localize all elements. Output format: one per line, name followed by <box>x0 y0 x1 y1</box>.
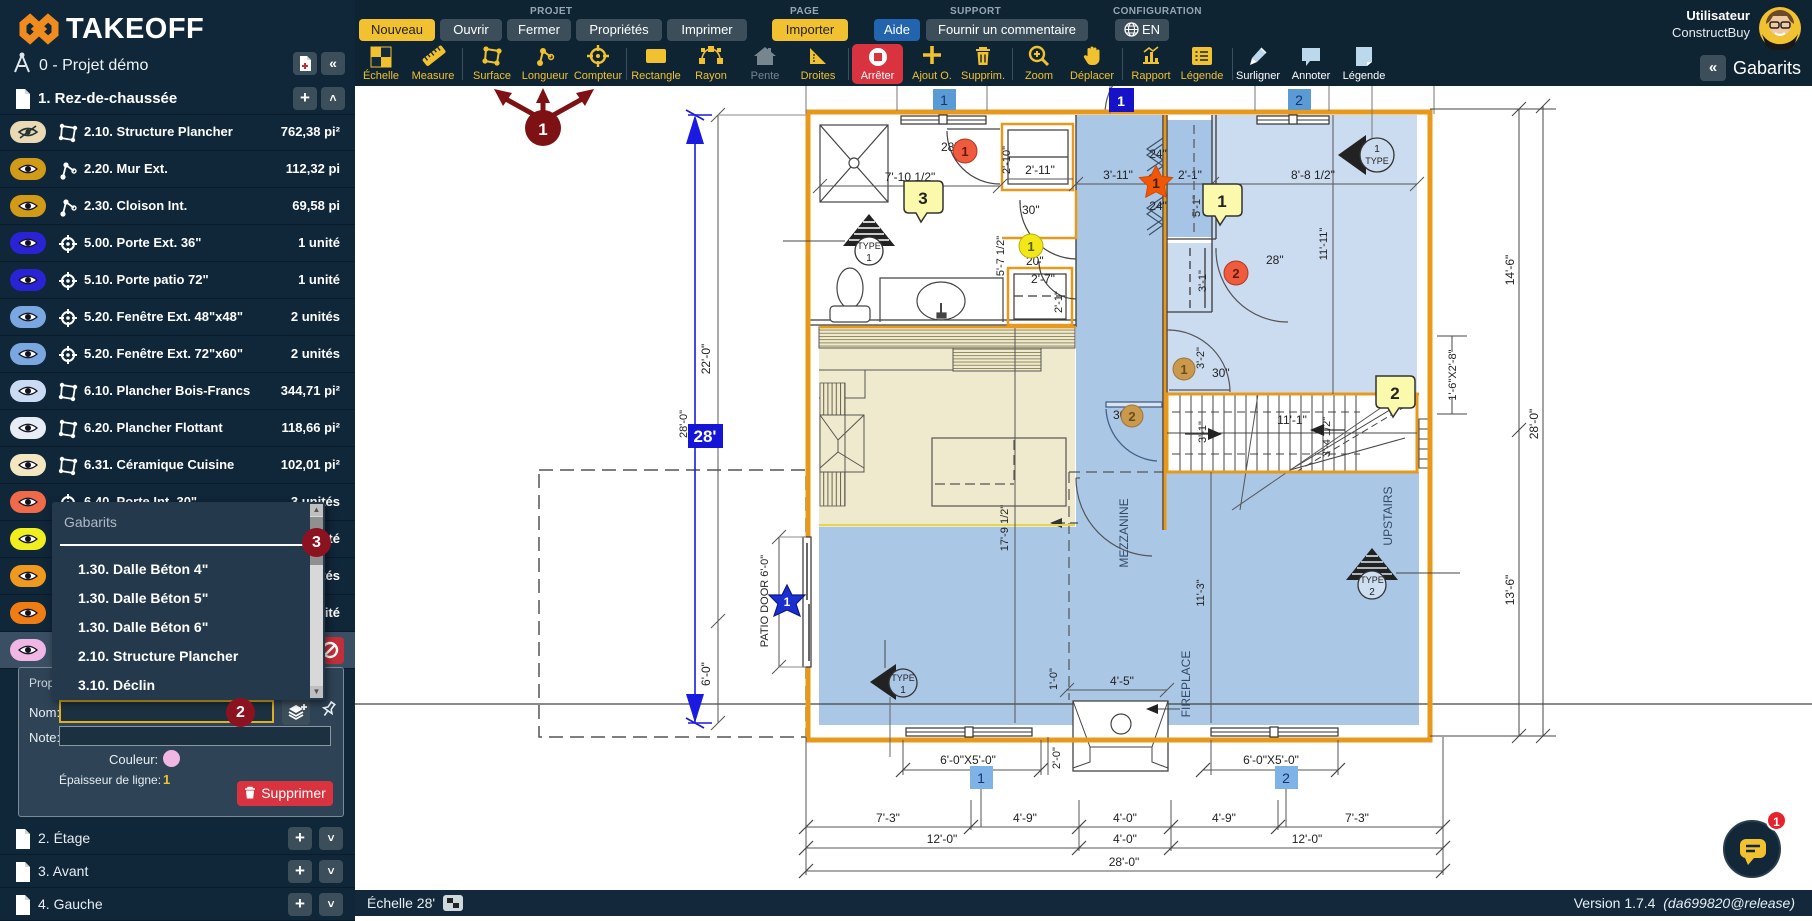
svg-text:2'-1": 2'-1" <box>1053 291 1065 313</box>
svg-text:3'-1": 3'-1" <box>1197 421 1209 443</box>
svg-text:1: 1 <box>538 120 547 139</box>
svg-text:8'-8 1/2": 8'-8 1/2" <box>1291 168 1335 182</box>
svg-text:1: 1 <box>1217 192 1226 211</box>
svg-text:2: 2 <box>1282 770 1290 786</box>
svg-text:5'-1": 5'-1" <box>1191 195 1203 217</box>
svg-text:FIREPLACE: FIREPLACE <box>1179 651 1193 718</box>
svg-text:4'-9": 4'-9" <box>1013 811 1037 825</box>
svg-text:3: 3 <box>918 189 927 208</box>
svg-text:28": 28" <box>1266 253 1284 267</box>
svg-text:1: 1 <box>784 595 791 609</box>
svg-text:TYPE: TYPE <box>857 241 881 251</box>
svg-text:17'-9 1/2": 17'-9 1/2" <box>999 505 1011 551</box>
svg-text:2: 2 <box>1232 266 1239 281</box>
svg-text:TYPE: TYPE <box>1360 575 1384 585</box>
svg-text:12'-0": 12'-0" <box>1292 832 1323 846</box>
svg-text:2'-11": 2'-11" <box>1025 163 1055 177</box>
svg-text:30": 30" <box>1022 203 1040 217</box>
svg-text:24": 24" <box>1149 147 1167 161</box>
svg-text:1'-0": 1'-0" <box>1048 668 1060 690</box>
svg-text:7'-3": 7'-3" <box>1345 811 1369 825</box>
svg-text:2'-1": 2'-1" <box>1178 168 1202 182</box>
svg-text:30": 30" <box>1212 366 1230 380</box>
svg-text:3'-1": 3'-1" <box>1197 270 1209 292</box>
svg-text:1: 1 <box>900 685 906 696</box>
svg-text:28'-0": 28'-0" <box>1109 855 1140 869</box>
svg-text:4'-0": 4'-0" <box>1113 832 1137 846</box>
svg-text:1: 1 <box>1374 144 1380 155</box>
svg-text:28'-0": 28'-0" <box>1527 409 1541 440</box>
svg-text:2'-7": 2'-7" <box>1031 272 1055 286</box>
svg-text:12'-0": 12'-0" <box>927 832 958 846</box>
svg-text:2: 2 <box>1369 587 1375 598</box>
svg-text:1: 1 <box>940 92 948 108</box>
svg-text:PATIO DOOR 6'-0": PATIO DOOR 6'-0" <box>759 555 771 647</box>
svg-text:13'-6": 13'-6" <box>1503 575 1517 606</box>
svg-text:2: 2 <box>1390 384 1399 403</box>
svg-text:1: 1 <box>866 253 872 264</box>
svg-text:1: 1 <box>1117 93 1125 109</box>
svg-text:4'-9": 4'-9" <box>1212 811 1236 825</box>
svg-text:1'-6"X2'-8": 1'-6"X2'-8" <box>1447 349 1459 400</box>
svg-text:11'-3": 11'-3" <box>1195 579 1207 606</box>
svg-text:24": 24" <box>1149 199 1167 213</box>
svg-text:7'-3": 7'-3" <box>876 811 900 825</box>
svg-text:4'-5": 4'-5" <box>1110 674 1134 688</box>
svg-text:3'-4 1/2": 3'-4 1/2" <box>1321 417 1333 457</box>
svg-text:11'-11": 11'-11" <box>1318 228 1330 261</box>
svg-text:2'-10": 2'-10" <box>1001 146 1013 174</box>
svg-text:3'-11": 3'-11" <box>1103 168 1133 182</box>
svg-text:3'-2": 3'-2" <box>1195 347 1207 369</box>
svg-text:MEZZANINE: MEZZANINE <box>1117 498 1131 567</box>
svg-text:22'-0": 22'-0" <box>699 344 713 375</box>
svg-text:TYPE: TYPE <box>891 673 915 683</box>
svg-text:4'-0": 4'-0" <box>1113 811 1137 825</box>
svg-text:1: 1 <box>1180 362 1187 377</box>
svg-text:TYPE: TYPE <box>1365 156 1389 166</box>
svg-text:6'-0"X5'-0": 6'-0"X5'-0" <box>940 753 996 767</box>
svg-text:11'-1": 11'-1" <box>1277 413 1307 427</box>
svg-text:14'-6": 14'-6" <box>1503 255 1517 286</box>
svg-text:2: 2 <box>1295 92 1303 108</box>
svg-text:UPSTAIRS: UPSTAIRS <box>1381 486 1395 545</box>
svg-text:1: 1 <box>977 770 985 786</box>
svg-text:5'-7 1/2": 5'-7 1/2" <box>995 236 1007 276</box>
svg-text:2'-0": 2'-0" <box>1051 747 1063 769</box>
svg-text:28': 28' <box>694 427 717 446</box>
svg-text:2: 2 <box>1128 409 1135 424</box>
svg-text:1: 1 <box>961 144 968 159</box>
svg-text:6'-0": 6'-0" <box>699 662 713 686</box>
svg-text:1: 1 <box>1152 175 1160 191</box>
svg-text:1: 1 <box>1027 239 1034 254</box>
svg-text:6'-0"X5'-0": 6'-0"X5'-0" <box>1243 753 1299 767</box>
